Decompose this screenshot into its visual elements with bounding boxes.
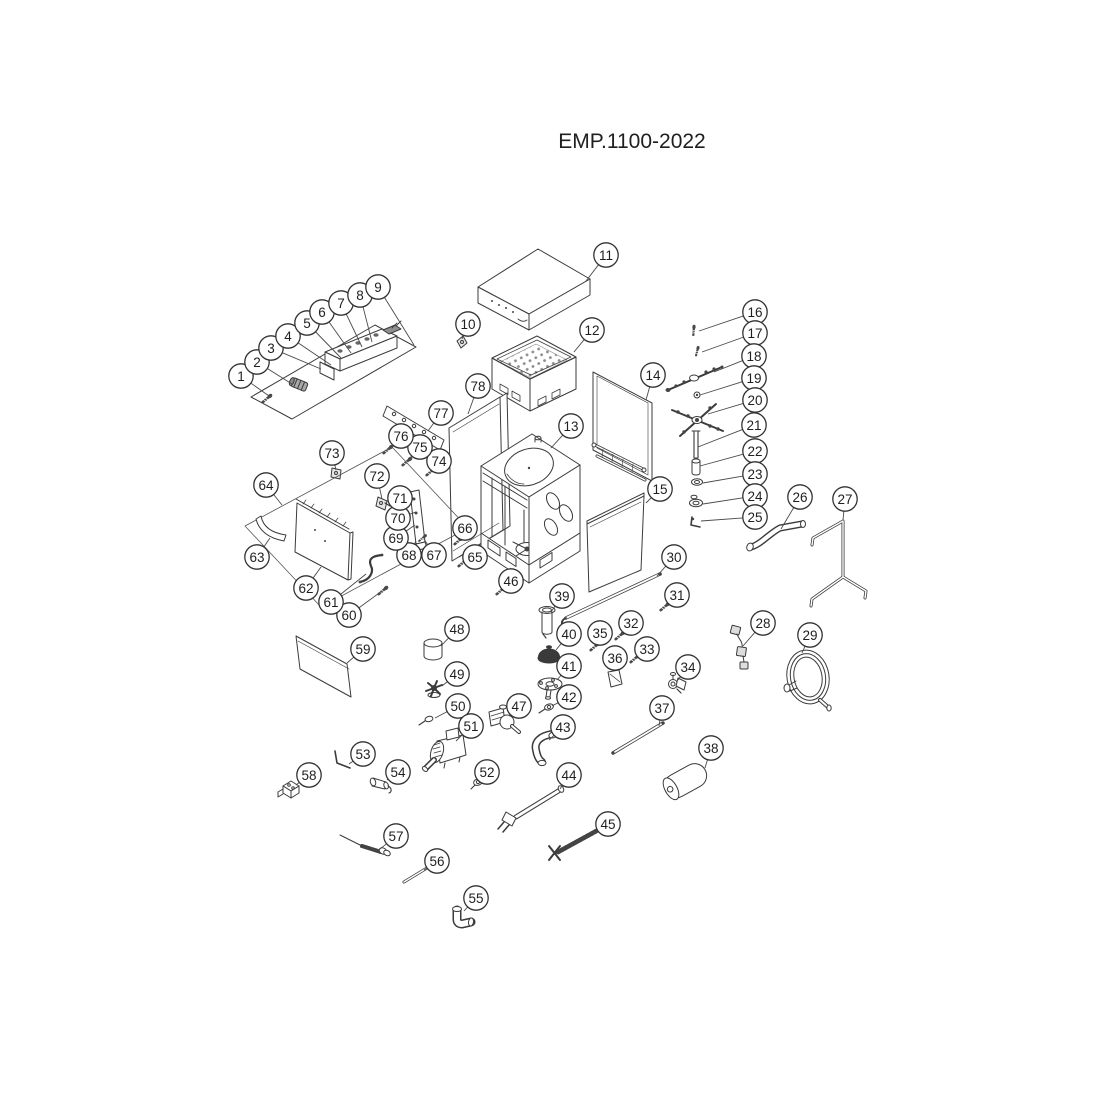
callout-number-67: 67 [426, 548, 441, 563]
parts-diagram-page: EMP.1100-2022 [0, 0, 1100, 1100]
callout-number-72: 72 [369, 469, 384, 484]
callout-number-3: 3 [267, 341, 275, 356]
part-23-nut [692, 479, 703, 485]
leader-line-41 [557, 675, 561, 680]
callout-number-13: 13 [563, 419, 578, 434]
leader-line-77 [428, 423, 434, 431]
callout-number-2: 2 [253, 355, 261, 370]
callout-number-60: 60 [341, 608, 356, 623]
part-40-cap [538, 645, 560, 663]
callout-number-35: 35 [592, 626, 607, 641]
callout-number-41: 41 [561, 659, 576, 674]
part-62-door-panel [295, 499, 353, 580]
callout-number-53: 53 [355, 747, 370, 762]
exploded-parts-diagram: EMP.1100-2022 [0, 0, 1100, 1100]
part-24-bearing [690, 495, 703, 507]
callout-number-43: 43 [555, 720, 570, 735]
callout-number-73: 73 [324, 446, 339, 461]
part-15-side-panel [587, 493, 644, 592]
callout-number-34: 34 [680, 660, 696, 675]
callout-number-70: 70 [390, 511, 405, 526]
callout-number-8: 8 [356, 288, 364, 303]
part-53-bent-wire [335, 751, 350, 768]
callout-number-20: 20 [747, 393, 762, 408]
callout-number-27: 27 [837, 492, 852, 507]
callout-number-69: 69 [388, 531, 403, 546]
part-49-impeller [426, 681, 442, 698]
part-16-screw [692, 325, 696, 336]
leader-line-16 [699, 316, 743, 331]
callout-number-16: 16 [747, 305, 762, 320]
callout-number-55: 55 [468, 891, 483, 906]
leader-line-50 [435, 712, 447, 718]
leader-line-59 [347, 657, 354, 663]
callout-number-23: 23 [747, 467, 762, 482]
callout-number-75: 75 [412, 440, 427, 455]
part-19-ball [694, 392, 700, 398]
leader-line-24 [703, 498, 743, 504]
leader-line-12 [574, 339, 584, 352]
part-27-stand-frame [811, 521, 866, 606]
leader-line-28 [743, 632, 755, 646]
leader-line-17 [702, 337, 744, 352]
part-28-sensor-cable [730, 625, 748, 669]
part-75-screw [402, 456, 414, 467]
callout-number-33: 33 [639, 642, 654, 657]
part-17-screw [695, 346, 700, 356]
part-38-roller [660, 759, 711, 802]
callout-number-77: 77 [433, 406, 448, 421]
callout-number-12: 12 [584, 323, 599, 338]
callout-number-59: 59 [355, 642, 370, 657]
leader-line-60 [359, 591, 382, 608]
callout-number-47: 47 [511, 699, 526, 714]
callout-number-38: 38 [703, 741, 718, 756]
leader-line-14 [646, 387, 650, 400]
callout-number-74: 74 [431, 454, 447, 469]
leader-line-25 [701, 518, 743, 521]
part-36-bracket [608, 670, 622, 687]
callout-number-10: 10 [460, 317, 475, 332]
callout-number-37: 37 [654, 701, 669, 716]
callout-number-22: 22 [747, 444, 762, 459]
part-50-o-ring [419, 715, 434, 725]
callout-number-15: 15 [652, 482, 667, 497]
leader-line-13 [551, 435, 563, 448]
leader-line-29 [802, 646, 805, 653]
callout-number-45: 45 [600, 817, 615, 832]
callout-number-21: 21 [746, 418, 761, 433]
leader-line-19 [700, 382, 742, 395]
callout-number-68: 68 [401, 548, 416, 563]
part-18-upper-wash-arm [666, 366, 724, 393]
callout-number-65: 65 [467, 550, 482, 565]
leader-line-49 [442, 682, 447, 686]
leader-line-11 [586, 265, 599, 281]
callout-number-58: 58 [301, 768, 316, 783]
leader-line-23 [703, 476, 743, 483]
callout-number-31: 31 [669, 588, 684, 603]
callout-number-40: 40 [561, 627, 576, 642]
callout-number-4: 4 [284, 329, 292, 344]
part-42-seal [539, 703, 554, 713]
part-37-rod [611, 721, 664, 754]
callout-number-39: 39 [554, 589, 569, 604]
callout-number-28: 28 [755, 616, 770, 631]
leader-line-64 [274, 495, 282, 505]
part-59-panel [296, 636, 351, 697]
leader-line-55 [464, 907, 468, 911]
callout-number-44: 44 [561, 768, 577, 783]
callout-number-7: 7 [337, 296, 345, 311]
part-63-handle [256, 516, 286, 541]
callout-number-66: 66 [457, 521, 472, 536]
part-48-cup [424, 639, 442, 660]
part-60-screw [378, 585, 390, 596]
callout-number-19: 19 [746, 371, 761, 386]
part-14-rear-panel [592, 372, 652, 481]
callout-number-61: 61 [323, 595, 338, 610]
callout-number-18: 18 [746, 349, 761, 364]
part-25-clip [691, 517, 700, 527]
leader-line-22 [700, 454, 743, 466]
part-44-heating-element [498, 785, 565, 832]
leader-line-78 [468, 397, 474, 414]
part-45-threaded-rod [549, 829, 600, 860]
leader-line-53 [349, 761, 353, 764]
callout-number-52: 52 [479, 765, 494, 780]
callout-number-57: 57 [388, 829, 403, 844]
leader-line-63 [264, 538, 270, 547]
callout-number-49: 49 [449, 667, 464, 682]
callout-number-64: 64 [258, 478, 274, 493]
callout-number-63: 63 [249, 550, 264, 565]
part-21-shaft [692, 431, 700, 458]
part-51-pump-motor [421, 728, 466, 772]
leader-line-62 [313, 567, 321, 578]
part-29-drain-hose-coil [783, 647, 834, 711]
callout-number-25: 25 [747, 510, 762, 525]
callout-number-14: 14 [645, 368, 661, 383]
callout-number-29: 29 [802, 628, 817, 643]
part-11-top-cover [478, 249, 590, 330]
part-56-pin [404, 868, 427, 882]
part-61-curved-rod [359, 554, 384, 584]
leader-line-15 [646, 498, 651, 503]
part-22-bushing [692, 459, 700, 475]
callout-number-9: 9 [374, 280, 382, 295]
part-69-screw-dot [416, 526, 419, 529]
callout-number-17: 17 [747, 326, 762, 341]
page-title: EMP.1100-2022 [558, 130, 706, 153]
leader-line-20 [708, 403, 743, 414]
leader-line-40 [556, 643, 561, 650]
callout-number-54: 54 [390, 765, 406, 780]
callout-number-24: 24 [747, 489, 763, 504]
callout-number-71: 71 [392, 491, 407, 506]
callout-number-26: 26 [792, 490, 807, 505]
leader-line-27 [843, 511, 844, 520]
callout-number-62: 62 [298, 581, 313, 596]
part-39-standpipe [539, 607, 555, 639]
callout-number-50: 50 [450, 699, 465, 714]
leader-line-38 [705, 760, 707, 768]
callout-number-5: 5 [303, 316, 311, 331]
callout-number-6: 6 [318, 305, 326, 320]
callout-number-76: 76 [393, 429, 408, 444]
callout-number-46: 46 [503, 574, 518, 589]
part-58-bracket [278, 781, 299, 798]
callout-number-11: 11 [599, 248, 613, 263]
callout-number-30: 30 [666, 550, 681, 565]
callout-number-1: 1 [237, 369, 245, 384]
callout-number-32: 32 [623, 616, 638, 631]
callout-number-48: 48 [449, 622, 464, 637]
callout-number-51: 51 [463, 719, 478, 734]
callout-number-56: 56 [429, 854, 444, 869]
callout-number-78: 78 [470, 379, 485, 394]
callout-number-42: 42 [561, 690, 576, 705]
leader-line-18 [714, 361, 743, 372]
callout-number-36: 36 [607, 651, 622, 666]
leader-line-21 [698, 429, 743, 447]
